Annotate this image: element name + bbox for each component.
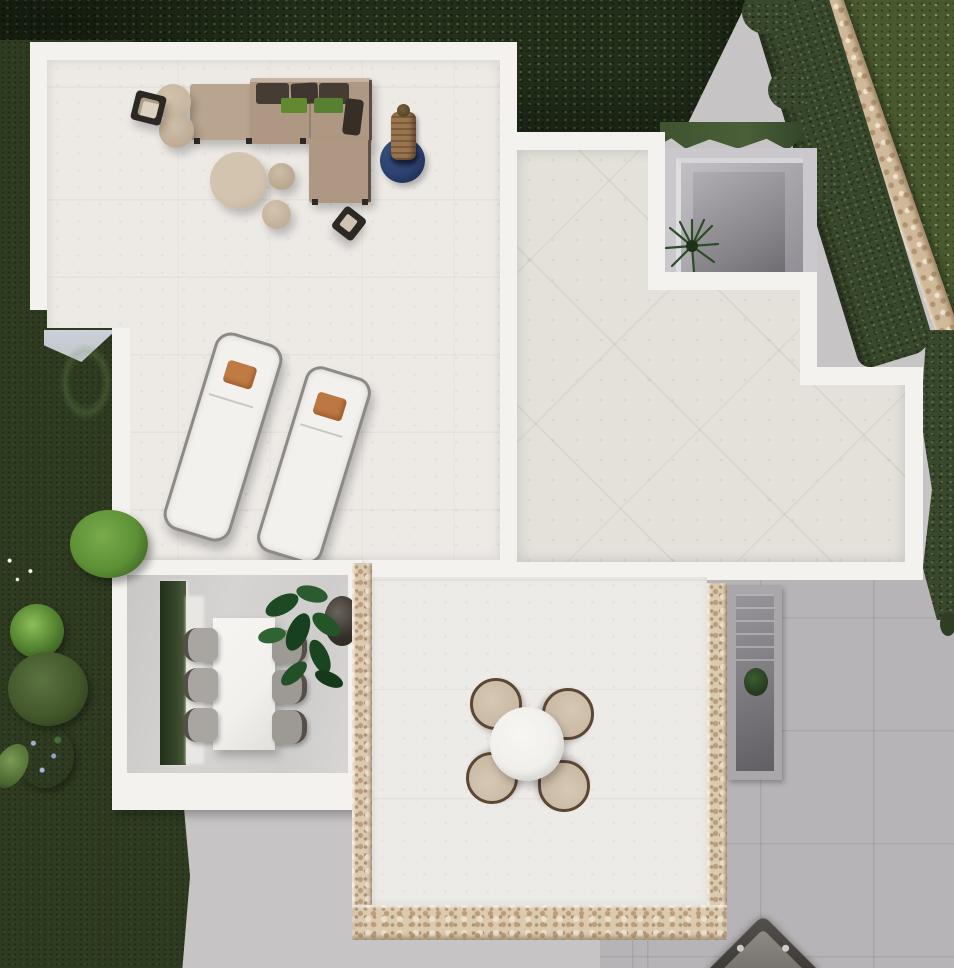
sofa-bench-module: [190, 84, 252, 140]
pebble-border-bottom: [352, 905, 727, 940]
lounger-seam: [300, 423, 343, 437]
sofa-leg-1: [194, 138, 200, 144]
stairwell-steps: [736, 594, 774, 664]
heater-top-knob: [397, 104, 410, 117]
sofa-leg-5: [362, 199, 368, 205]
hedge-blob-2: [768, 70, 810, 110]
pebble-border-right: [707, 583, 727, 940]
faint-bush-outline: [56, 338, 116, 426]
palm-plant: [660, 216, 724, 274]
monstera-plant: [252, 580, 367, 708]
coffee-table-round: [210, 152, 267, 209]
bush-olive: [8, 652, 88, 726]
stairwell-plant: [744, 668, 768, 696]
sofa-chaise-module: [309, 139, 371, 203]
dining-chair: [183, 668, 218, 702]
lounger-seam: [209, 393, 253, 408]
sofa-leg-4: [312, 199, 318, 205]
sofa-pillow-green-1: [281, 98, 307, 113]
lounger-pillow-orange: [312, 391, 347, 422]
monstera-leaf: [277, 657, 311, 690]
pebble-border-left: [352, 563, 372, 940]
pouf-stack-bottom: [159, 113, 194, 148]
pouf-small-s: [262, 200, 291, 229]
edge-plant-blob: [940, 612, 954, 636]
courtyard-turf-strip: [660, 122, 802, 150]
aerial-villa-render: [0, 0, 954, 968]
sofa-pillow-green-2: [314, 98, 343, 113]
lounger-pillow-orange: [222, 359, 257, 390]
round-bistro-table: [490, 707, 564, 781]
sofa-leg-2: [246, 138, 252, 144]
dining-chair: [183, 708, 218, 742]
monstera-leaf: [257, 625, 288, 645]
monstera-leaf: [295, 582, 330, 605]
sofa-leg-3: [300, 138, 306, 144]
dining-chair: [183, 628, 218, 662]
pouf-small-ne: [268, 163, 295, 190]
sofa-frame-edge-right: [369, 80, 372, 140]
heater-wicker-column: [391, 112, 416, 160]
sofa-chaise-edge: [368, 140, 371, 202]
bush-bright-large: [70, 510, 148, 578]
bush-bright-small: [10, 604, 64, 658]
dining-chair: [272, 710, 307, 744]
pergola-hedge-strip: [160, 581, 186, 765]
